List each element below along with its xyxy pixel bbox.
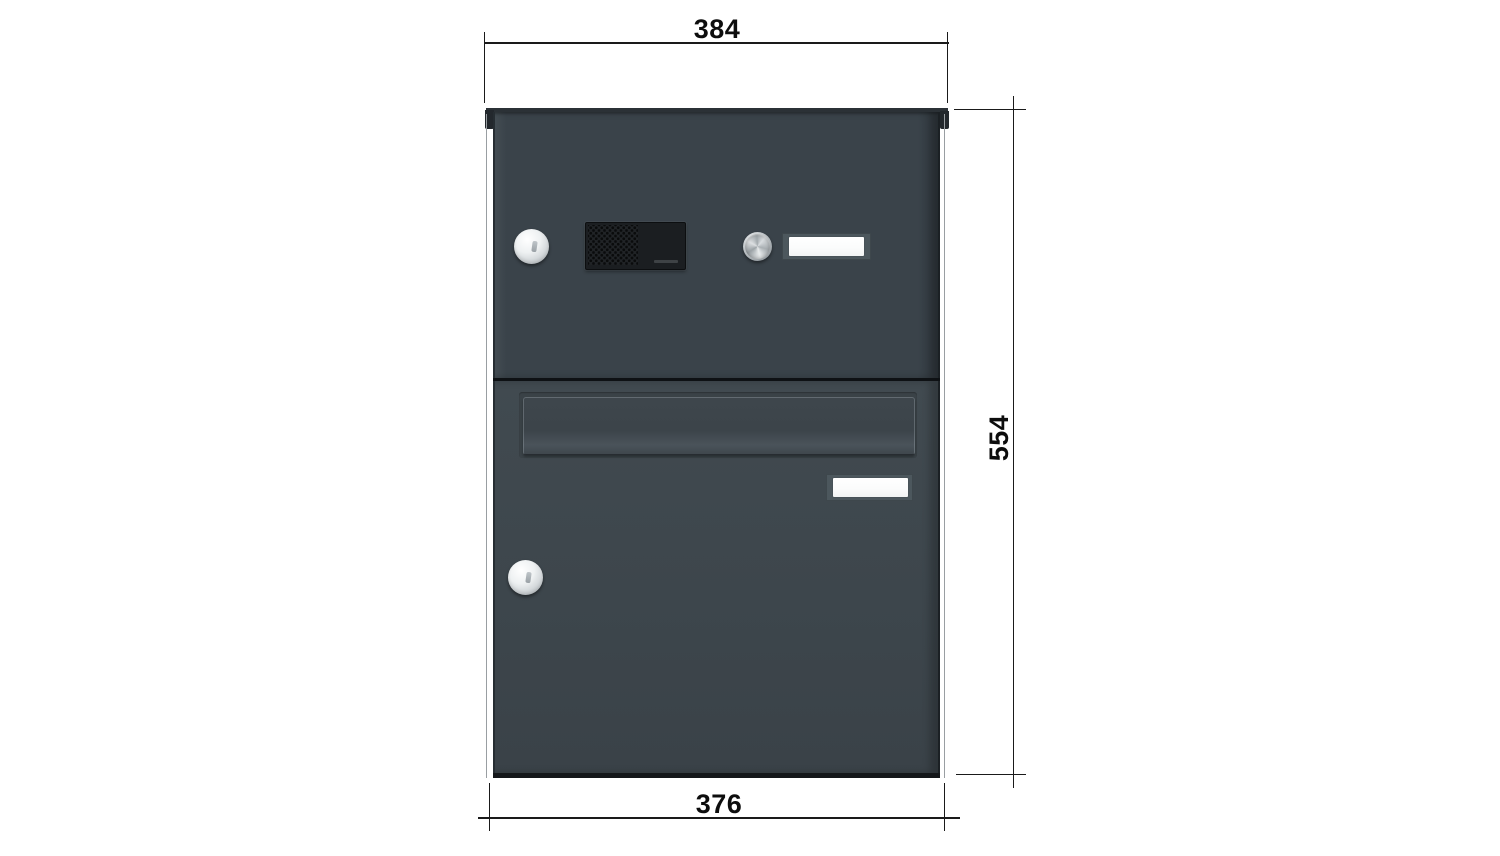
product-drawing: 384 554 376 <box>0 0 1500 856</box>
lock-cylinder-icon <box>514 229 549 264</box>
keyhole-icon <box>525 572 531 584</box>
speaker-grille-icon <box>588 225 638 265</box>
mail-slot-flap <box>523 397 915 455</box>
dimension-bottom-tick-left <box>489 783 490 831</box>
intercom-module <box>585 222 686 270</box>
brand-mark <box>654 260 678 263</box>
dimension-top-tick-left <box>484 32 485 103</box>
dimension-bottom-tick-right <box>944 783 945 831</box>
nameplate-lower-card <box>833 478 908 497</box>
body-bottom-edge <box>493 773 940 778</box>
doorbell-button-icon <box>743 232 772 261</box>
dimension-right-line <box>1013 96 1014 788</box>
lock-cylinder-icon <box>508 560 543 595</box>
dimension-top-line <box>484 42 949 44</box>
mail-slot <box>519 392 917 458</box>
mailbox-body <box>493 112 940 778</box>
dimension-right-label: 554 <box>984 368 1014 508</box>
dimension-top-tick-right <box>947 32 948 103</box>
intercom-panel <box>493 112 940 378</box>
nameplate-upper-card <box>789 237 864 256</box>
keyhole-icon <box>531 241 537 253</box>
dimension-bottom-label: 376 <box>649 789 789 819</box>
dimension-right-ext-top <box>954 109 1026 110</box>
doorbell-button-face <box>745 234 770 259</box>
dimension-right-ext-bottom <box>956 774 1026 775</box>
nameplate-upper <box>782 233 871 260</box>
dimension-top-label: 384 <box>647 14 787 44</box>
side-wall-edge-right <box>944 114 945 778</box>
nameplate-lower <box>826 474 913 501</box>
side-wall-edge-left <box>486 114 487 778</box>
dimension-bottom-line <box>478 817 960 819</box>
